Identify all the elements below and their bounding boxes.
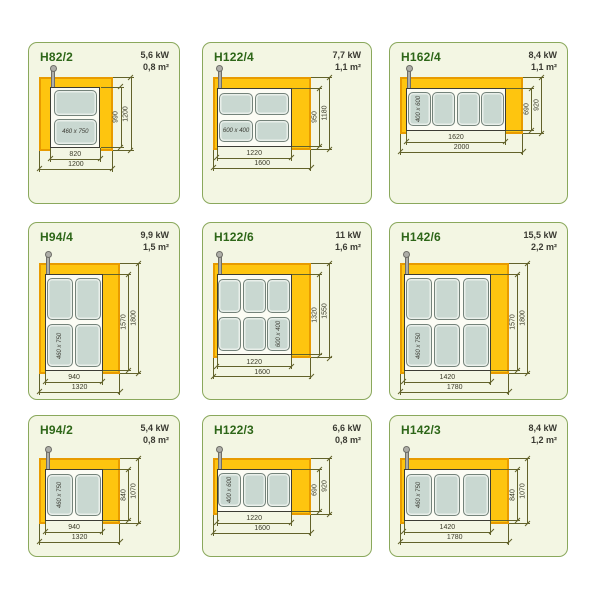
hotplate xyxy=(54,90,96,116)
hotplate xyxy=(243,317,266,351)
dim-label-inner-height: 1570 xyxy=(120,315,127,331)
hotplate xyxy=(434,324,460,366)
dim-label-outer-height: 1200 xyxy=(123,106,130,122)
dim-line xyxy=(329,458,330,515)
dim-label-inner-width: 1420 xyxy=(440,524,456,531)
dim-line xyxy=(400,542,509,543)
product-panel: H94/49,9 kW1,5 m²460 x 75094013201570180… xyxy=(28,222,180,400)
dim-line xyxy=(213,168,311,169)
dim-label-outer-width: 1320 xyxy=(72,384,88,391)
dim-line xyxy=(39,542,120,543)
hotplate: 460 x 750 xyxy=(406,474,432,516)
hotplate xyxy=(457,92,480,126)
dim-line xyxy=(406,142,506,143)
product-panel: H82/25,6 kW0,8 m²460 x 75082012009901200 xyxy=(28,42,180,204)
dim-line xyxy=(213,533,311,534)
chimney-cap-icon xyxy=(406,65,413,72)
dim-label-outer-width: 1600 xyxy=(254,369,270,376)
dim-line xyxy=(400,152,523,153)
plate-size-label: 600 x 400 xyxy=(276,321,282,347)
hotplate xyxy=(481,92,504,126)
dim-line xyxy=(138,458,139,524)
stove-diagram: 460 x 7501420178015701800 xyxy=(390,223,569,401)
product-panel: H142/38,4 kW1,2 m²460 x 7501420178084010… xyxy=(389,415,568,557)
dim-label-outer-width: 1600 xyxy=(254,525,270,532)
chimney-cap-icon xyxy=(216,446,223,453)
dim-line xyxy=(45,532,103,533)
hotplate xyxy=(243,279,266,313)
product-panel: H122/36,6 kW0,8 m²400 x 6001220160069092… xyxy=(202,415,372,557)
chimney-cap-icon xyxy=(50,65,57,72)
dim-label-outer-width: 1780 xyxy=(447,534,463,541)
hotplate: 460 x 750 xyxy=(406,324,432,366)
hotplate xyxy=(432,92,455,126)
hotplate xyxy=(243,473,266,507)
hotplate xyxy=(463,278,489,320)
dim-label-outer-height: 1070 xyxy=(130,483,137,499)
hotplate xyxy=(434,278,460,320)
plate-size-label: 460 x 750 xyxy=(57,482,63,508)
dim-line xyxy=(319,88,320,146)
dim-label-inner-height: 840 xyxy=(509,489,516,501)
hotplate xyxy=(255,93,289,116)
hotplate xyxy=(47,278,73,320)
plate-size-label: 460 x 750 xyxy=(62,129,88,135)
dim-line xyxy=(217,366,292,367)
hotplate xyxy=(406,278,432,320)
dim-label-inner-width: 820 xyxy=(69,151,81,158)
dim-label-outer-height: 920 xyxy=(533,99,540,111)
hotplate xyxy=(255,120,289,143)
dim-label-inner-height: 840 xyxy=(120,489,127,501)
hotplate xyxy=(463,474,489,516)
dim-line xyxy=(527,458,528,524)
chimney-cap-icon xyxy=(403,446,410,453)
dim-label-outer-height: 1070 xyxy=(519,483,526,499)
dim-line xyxy=(213,376,311,377)
stove-diagram: 460 x 75082012009901200 xyxy=(29,43,181,205)
dim-line xyxy=(517,274,518,371)
chimney-cap-icon xyxy=(45,251,52,258)
dim-line xyxy=(128,469,129,521)
stove-diagram: 400 x 60012201600690920 xyxy=(203,416,373,558)
hotplate xyxy=(75,278,101,320)
dim-line xyxy=(39,169,113,170)
dim-line xyxy=(400,392,509,393)
dim-label-outer-width: 1600 xyxy=(254,160,270,167)
dim-label-inner-height: 690 xyxy=(311,485,318,497)
dim-line xyxy=(39,392,120,393)
stove-diagram: 600 x 4001220160013201550 xyxy=(203,223,373,401)
dim-line xyxy=(217,523,292,524)
product-panel: H94/25,4 kW0,8 m²460 x 75094013208401070 xyxy=(28,415,180,557)
plate-size-label: 400 x 600 xyxy=(416,96,422,122)
dim-label-inner-width: 1220 xyxy=(246,150,262,157)
hotplate: 400 x 600 xyxy=(218,473,241,507)
plate-size-label: 460 x 750 xyxy=(57,332,63,358)
dim-line xyxy=(319,274,320,355)
stove-diagram: 460 x 75094013208401070 xyxy=(29,416,181,558)
hotplate: 460 x 750 xyxy=(47,324,73,366)
chimney-cap-icon xyxy=(216,65,223,72)
hotplate: 400 x 600 xyxy=(408,92,431,126)
product-panel: H122/47,7 kW1,1 m²600 x 4001220160095011… xyxy=(202,42,372,204)
dim-line xyxy=(128,274,129,371)
plate-size-label: 460 x 750 xyxy=(416,482,422,508)
product-panel: H162/48,4 kW1,1 m²400 x 6001620200069092… xyxy=(389,42,568,204)
chimney-cap-icon xyxy=(216,251,223,258)
hotplate: 600 x 400 xyxy=(267,317,290,351)
plate-size-label: 460 x 750 xyxy=(416,332,422,358)
dim-line xyxy=(217,158,292,159)
plate-size-label: 600 x 400 xyxy=(223,128,249,134)
dim-line xyxy=(329,77,330,150)
dim-label-inner-width: 940 xyxy=(68,524,80,531)
dim-line xyxy=(131,77,132,151)
dim-label-outer-width: 1780 xyxy=(447,384,463,391)
dim-line xyxy=(404,382,491,383)
dim-label-inner-width: 940 xyxy=(68,374,80,381)
dim-line xyxy=(527,263,528,374)
stove-diagram: 400 x 60016202000690920 xyxy=(390,43,569,205)
dim-label-inner-height: 1570 xyxy=(509,315,516,331)
hotplate xyxy=(267,279,290,313)
hotplate xyxy=(75,324,101,366)
hotplate xyxy=(218,317,241,351)
dim-line xyxy=(329,263,330,358)
stove-diagram: 460 x 750940132015701800 xyxy=(29,223,181,401)
dim-line xyxy=(517,469,518,521)
dim-label-inner-width: 1220 xyxy=(246,515,262,522)
dim-label-outer-height: 1180 xyxy=(321,106,328,121)
dim-label-inner-height: 1320 xyxy=(311,307,318,323)
dim-label-outer-width: 1200 xyxy=(68,161,84,168)
hotplate xyxy=(218,279,241,313)
hotplate: 600 x 400 xyxy=(219,120,253,143)
stove-diagram: 460 x 750142017808401070 xyxy=(390,416,569,558)
dim-line xyxy=(319,469,320,511)
dim-label-inner-width: 1420 xyxy=(440,374,456,381)
dim-label-inner-height: 690 xyxy=(523,104,530,116)
hotplate xyxy=(75,474,101,516)
dim-label-outer-height: 920 xyxy=(321,480,328,492)
dim-line xyxy=(45,382,103,383)
stove-diagram: 600 x 400122016009501180 xyxy=(203,43,373,205)
dim-label-inner-width: 1620 xyxy=(448,134,464,141)
dim-label-inner-width: 1220 xyxy=(246,359,262,366)
dim-label-outer-height: 1550 xyxy=(321,303,328,319)
dim-line xyxy=(404,532,491,533)
dim-label-outer-height: 1800 xyxy=(130,311,137,327)
dim-line xyxy=(138,263,139,374)
hotplate xyxy=(219,93,253,116)
catalog-page: { "colors": { "panel_bg": "#f3f6e3", "pa… xyxy=(0,0,600,600)
hotplate xyxy=(463,324,489,366)
dim-label-inner-height: 990 xyxy=(113,112,120,124)
chimney-cap-icon xyxy=(403,251,410,258)
chimney-cap-icon xyxy=(45,446,52,453)
dim-line xyxy=(531,88,532,130)
dim-label-outer-width: 1320 xyxy=(72,534,88,541)
dim-line xyxy=(541,77,542,134)
dim-label-inner-height: 950 xyxy=(311,112,318,124)
dim-line xyxy=(50,159,100,160)
dim-label-outer-width: 2000 xyxy=(454,144,470,151)
plate-size-label: 400 x 600 xyxy=(227,477,233,503)
product-panel: H122/611 kW1,6 m²600 x 40012201600132015… xyxy=(202,222,372,400)
dim-label-outer-height: 1800 xyxy=(519,311,526,327)
hotplate xyxy=(434,474,460,516)
hotplate: 460 x 750 xyxy=(54,119,96,145)
product-panel: H142/615,5 kW2,2 m²460 x 750142017801570… xyxy=(389,222,568,400)
hotplate xyxy=(267,473,290,507)
hotplate: 460 x 750 xyxy=(47,474,73,516)
